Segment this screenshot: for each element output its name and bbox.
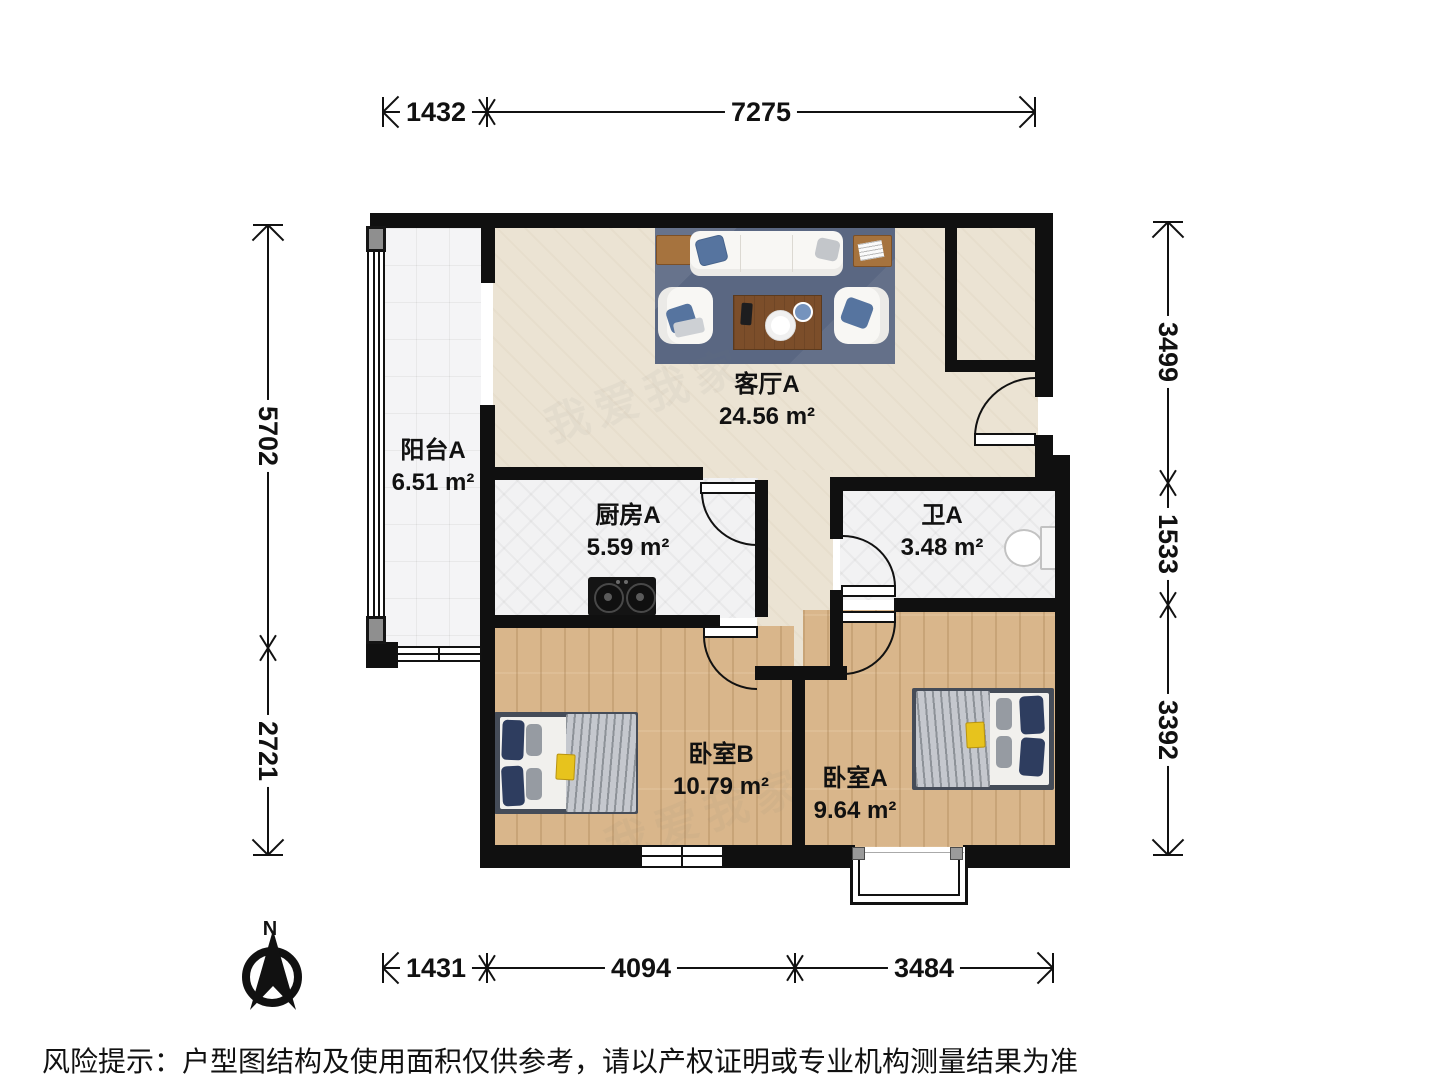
wall — [722, 845, 855, 868]
remote-control — [740, 303, 753, 326]
wall — [480, 845, 640, 868]
stove-knob — [624, 580, 628, 584]
room-area: 3.48 m² — [901, 535, 984, 561]
dimension-value: 1432 — [400, 98, 472, 126]
wall — [830, 477, 843, 539]
window-rail — [438, 648, 440, 660]
room-name: 卧室A — [814, 766, 897, 792]
blanket — [566, 714, 636, 812]
sofa-cushion-seam — [740, 235, 741, 272]
bay-window-inner-frame — [858, 847, 960, 896]
toilet-icon — [1004, 526, 1056, 568]
room-area: 24.56 m² — [719, 404, 815, 430]
pillow — [996, 698, 1012, 730]
burner — [594, 583, 624, 613]
room-area: 6.51 m² — [392, 470, 475, 496]
toilet-bowl — [1004, 529, 1044, 567]
dimension-value: 2721 — [254, 715, 282, 787]
door-leaf — [703, 626, 758, 638]
room-label-living: 客厅A 24.56 m² — [719, 372, 815, 431]
dimension-value: 5702 — [254, 400, 282, 472]
book — [965, 722, 985, 749]
wall — [830, 598, 842, 612]
room-name: 卫A — [901, 503, 984, 529]
room-area: 9.64 m² — [814, 798, 897, 824]
room-label-kitchen: 厨房A 5.59 m² — [587, 503, 670, 562]
pillow — [501, 765, 525, 806]
stove-knob — [616, 580, 620, 584]
pillow — [526, 724, 542, 756]
room-name: 卧室B — [673, 742, 769, 768]
side-table — [853, 235, 892, 267]
wall — [894, 598, 1070, 612]
dish — [793, 302, 813, 322]
pillow — [526, 768, 542, 800]
bay-window — [852, 847, 966, 907]
magazine — [858, 240, 885, 261]
window-rail — [378, 252, 380, 616]
wall — [480, 615, 720, 628]
room-label-bathroom: 卫A 3.48 m² — [901, 503, 984, 562]
dimension-value: 4094 — [605, 954, 677, 982]
window-rail — [373, 252, 375, 616]
window-rail — [681, 847, 683, 866]
wall-block — [366, 226, 386, 252]
room-area: 10.79 m² — [673, 774, 769, 800]
burner-center — [604, 593, 612, 601]
room-name: 厨房A — [587, 503, 670, 529]
bay-window-post — [852, 847, 865, 860]
floorplan-canvas: 我爱我家 我爱我家 — [0, 0, 1440, 1080]
wall — [945, 360, 1053, 372]
side-table — [656, 235, 692, 265]
room-label-bedroom-b: 卧室B 10.79 m² — [673, 742, 769, 801]
burner — [626, 583, 656, 613]
pillow — [814, 237, 841, 262]
pillow — [1019, 695, 1045, 734]
wall — [487, 467, 703, 480]
disclaimer-text: 风险提示：户型图结构及使用面积仅供参考，请以产权证明或专业机构测量结果为准 — [42, 1040, 1078, 1080]
wall — [792, 666, 805, 845]
sofa-cushion-seam — [792, 235, 793, 272]
room-label-bedroom-a: 卧室A 9.64 m² — [814, 766, 897, 825]
bay-window-post — [950, 847, 963, 860]
window — [640, 845, 724, 868]
dimension-value: 1431 — [400, 954, 472, 982]
bed — [494, 712, 638, 814]
wall — [481, 226, 495, 283]
wall — [963, 845, 1070, 868]
dimension-value: 1533 — [1154, 508, 1182, 580]
book — [555, 754, 575, 781]
coffee-table — [733, 295, 822, 350]
pillow — [1019, 737, 1046, 777]
door-leaf — [700, 482, 757, 494]
door-leaf — [841, 585, 896, 597]
dimension-value: 3484 — [888, 954, 960, 982]
room-name: 客厅A — [719, 372, 815, 398]
bed — [912, 688, 1054, 790]
room-area: 5.59 m² — [587, 535, 670, 561]
door-leaf — [841, 611, 896, 623]
window — [396, 646, 482, 662]
plate — [765, 310, 796, 341]
room-label-balcony: 阳台A 6.51 m² — [392, 438, 475, 497]
gas-stove-icon — [588, 577, 656, 616]
dimension-value: 3499 — [1154, 316, 1182, 388]
dimension-value: 7275 — [725, 98, 797, 126]
wall — [945, 226, 957, 372]
pillow — [996, 736, 1012, 768]
bay-window-sill — [854, 852, 964, 853]
dimension-line-top — [383, 111, 1035, 113]
entry-niche-floor — [955, 224, 1039, 364]
wall — [830, 477, 1070, 491]
wall — [366, 642, 398, 668]
dimension-value: 3392 — [1154, 694, 1182, 766]
door-leaf — [974, 433, 1036, 446]
window — [367, 250, 385, 618]
pillow — [501, 720, 524, 761]
burner-center — [636, 593, 644, 601]
wall-block — [366, 616, 386, 644]
room-name: 阳台A — [392, 438, 475, 464]
wall — [1055, 468, 1070, 868]
